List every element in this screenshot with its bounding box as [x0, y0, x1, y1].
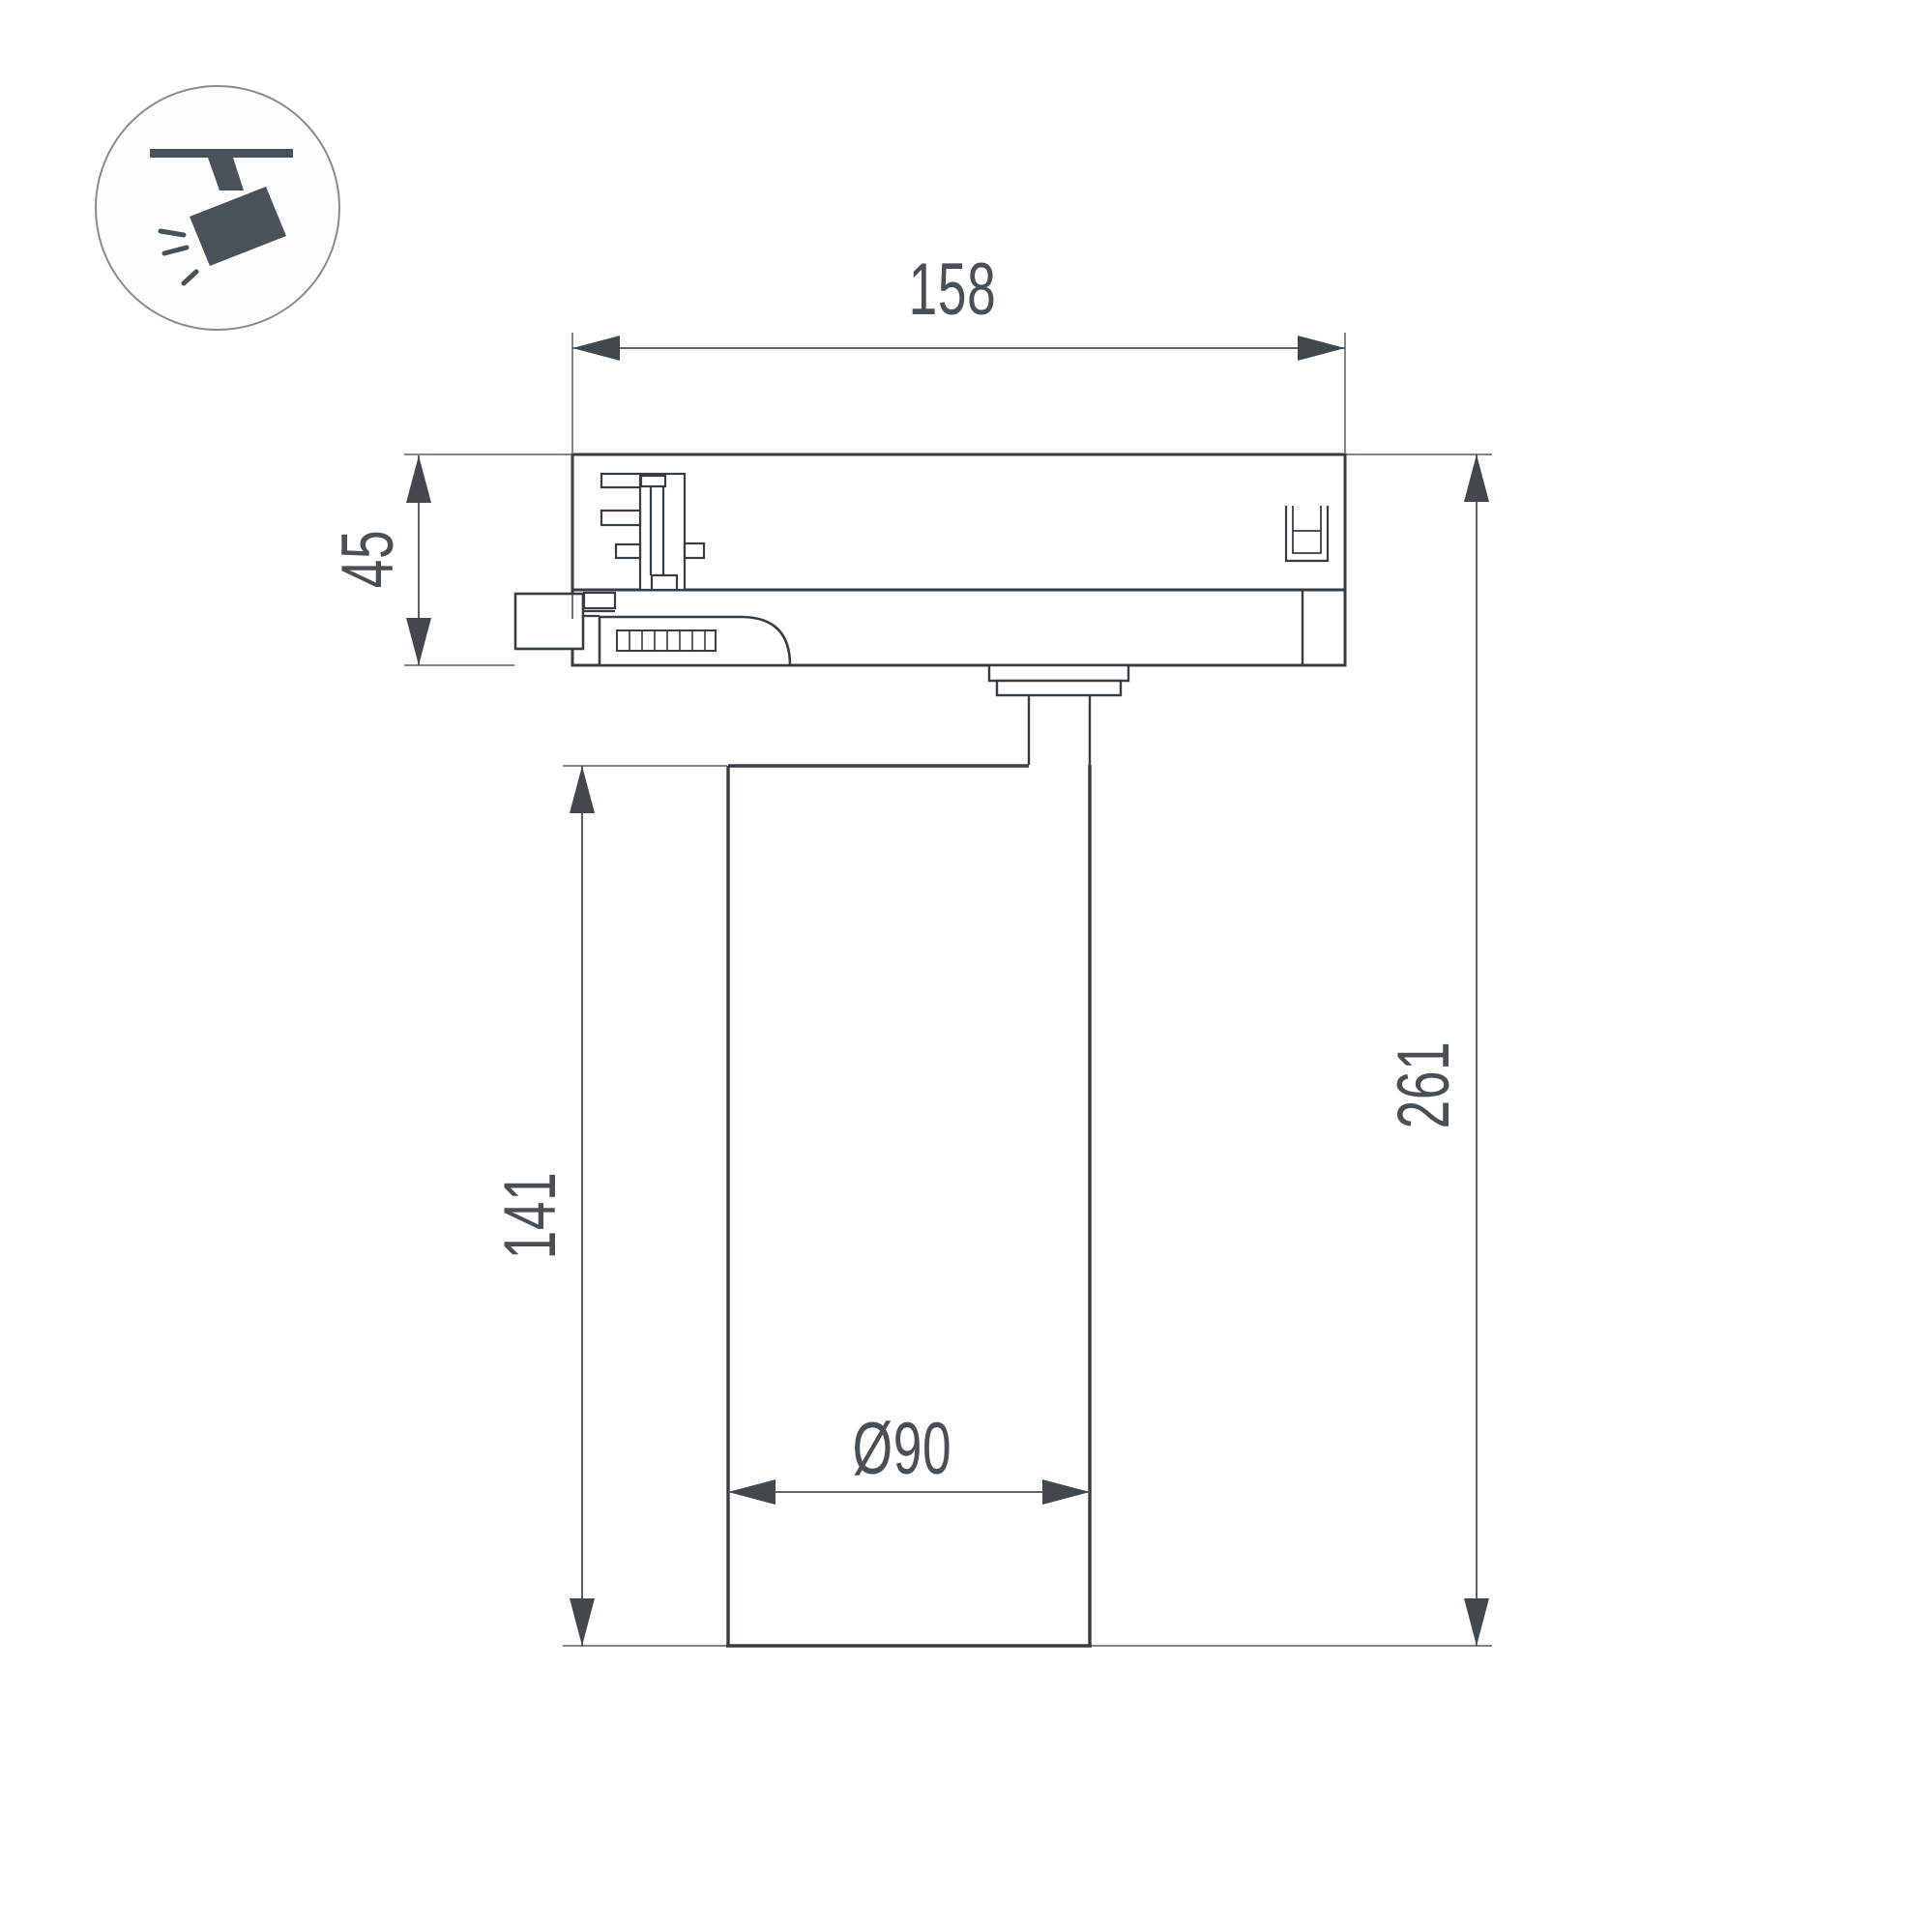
dim-label-adapter-height: 45 [332, 530, 405, 589]
track-adapter [515, 454, 1345, 765]
technical-drawing: 158 45 141 261 Ø90 [0, 0, 1932, 1932]
dim-label-width: 158 [909, 253, 997, 327]
pivot-mount [989, 665, 1128, 765]
lamp-body [726, 765, 1092, 1647]
grip-block [600, 617, 790, 665]
dim-label-body-height: 141 [494, 1172, 568, 1260]
track-spotlight-icon [96, 86, 339, 330]
dim-label-total-height: 261 [1388, 1041, 1461, 1129]
dim-label-diameter: Ø90 [853, 1413, 952, 1486]
